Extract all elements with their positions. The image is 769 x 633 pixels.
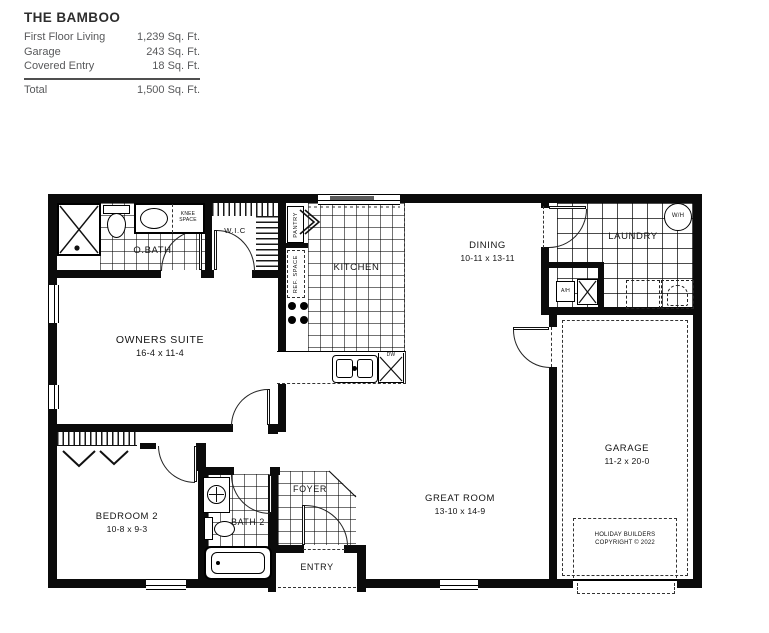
area-label: First Floor Living (24, 30, 105, 45)
bathtub (204, 546, 272, 580)
wall-segment (48, 270, 161, 278)
room-dims: 11-2 x 20-0 (568, 455, 686, 468)
owners-suite-window-lower (48, 385, 59, 409)
room-name: GREAT ROOM (395, 492, 525, 505)
wall-segment (598, 262, 604, 315)
washer (626, 280, 660, 309)
bedroom2-closet-hatch (57, 432, 137, 446)
room-dims: 13-10 x 14-9 (395, 505, 525, 518)
title-block-divider (24, 78, 200, 80)
wall-segment (48, 579, 146, 588)
wall-segment (364, 579, 440, 588)
room-label-bath2: BATH 2 (220, 516, 276, 529)
room-label-kitchen: KITCHEN (308, 261, 405, 274)
wall-segment (478, 579, 573, 588)
wall-segment (268, 545, 304, 553)
room-dims: 10-8 x 9-3 (67, 523, 187, 536)
pantry-box: PANTRY (287, 206, 304, 243)
room-label-wic: W.I.C (210, 224, 260, 237)
dishwasher: DW (378, 353, 404, 383)
wall-segment (140, 443, 156, 449)
copyright-text: HOLIDAY BUILDERS COPYRIGHT © 2022 (574, 532, 676, 547)
room-name: ENTRY (300, 562, 333, 572)
closet-bifold-doors-icon (63, 451, 128, 466)
room-label-garage: GARAGE 11-2 x 20-0 (568, 442, 686, 468)
garage-entry-door-opening (551, 327, 553, 367)
dryer-drum (667, 285, 688, 306)
room-name: KITCHEN (334, 262, 380, 273)
area-value: 18 Sq. Ft. (152, 59, 200, 74)
sink-basin (357, 359, 373, 378)
bath2-sink-basin (207, 485, 226, 504)
floorplan-page: THE BAMBOO First Floor Living 1,239 Sq. … (0, 0, 769, 633)
dishwasher-label: DW (379, 353, 403, 359)
room-dims: 16-4 x 11-4 (80, 347, 240, 360)
ref-space-label: REF. SPACE (293, 255, 299, 293)
wall-segment (549, 262, 604, 268)
wall-segment (268, 424, 278, 434)
room-name: OWNERS SUITE (80, 334, 240, 347)
room-label-bedroom2: BEDROOM 2 10-8 x 9-3 (67, 510, 187, 536)
wall-segment (693, 194, 702, 588)
total-row: Total 1,500 Sq. Ft. (24, 83, 200, 98)
bath2-toilet-tank (204, 517, 213, 540)
room-name: W.I.C (224, 226, 246, 235)
kitchen-sink (332, 355, 378, 383)
pantry-label: PANTRY (293, 212, 299, 238)
copyright-box: HOLIDAY BUILDERS COPYRIGHT © 2022 (573, 518, 677, 578)
wall-segment (48, 424, 233, 432)
room-label-owners-suite: OWNERS SUITE 16-4 x 11-4 (80, 334, 240, 360)
wall-segment (549, 315, 557, 327)
burner (288, 302, 296, 310)
kitchen-window-sill (330, 196, 374, 200)
great-room-window (440, 579, 478, 590)
room-name: O.BATH (133, 245, 171, 256)
room-label-laundry: LAUNDRY (577, 230, 689, 243)
burner (288, 316, 296, 324)
area-value: 243 Sq. Ft. (146, 45, 200, 60)
wall-segment (357, 545, 366, 592)
kitchen-dining-floor-break (404, 203, 406, 353)
wall-segment (48, 323, 57, 385)
knee-space-label: KNEE SPACE (173, 212, 203, 223)
air-handler-label: A/H (561, 289, 570, 295)
bedroom2-window (146, 579, 186, 590)
air-handler-box: A/H (556, 281, 575, 302)
wall-segment (201, 270, 214, 278)
room-name: BEDROOM 2 (67, 510, 187, 523)
wall-segment (270, 467, 280, 475)
room-name: BATH 2 (231, 517, 265, 527)
entry-threshold (303, 549, 345, 551)
wall-segment (400, 194, 702, 203)
garage-door-panel (577, 583, 675, 594)
sink-faucet (352, 366, 357, 371)
burner (300, 316, 308, 324)
room-name: DINING (430, 239, 545, 252)
bathtub-drain (216, 561, 220, 565)
sink-basin (336, 359, 353, 378)
room-dims: 10-11 x 13-11 (430, 252, 545, 265)
room-label-dining: DINING 10-11 x 13-11 (430, 239, 545, 265)
room-label-entry: ENTRY (282, 561, 352, 574)
wall-segment (549, 367, 557, 579)
wic-shelf-hatch-top (212, 203, 278, 216)
area-row: Covered Entry 18 Sq. Ft. (24, 59, 200, 74)
knee-space-line2: SPACE (173, 218, 203, 224)
room-name: FOYER (293, 484, 327, 494)
dryer (661, 280, 694, 309)
ref-space-box: REF. SPACE (287, 250, 305, 298)
room-label-obath: O.BATH (100, 244, 205, 257)
kitchen-floor (308, 203, 405, 353)
area-label: Covered Entry (24, 59, 94, 74)
copyright-line2: COPYRIGHT © 2022 (574, 540, 676, 548)
wall-segment (252, 270, 278, 278)
total-label: Total (24, 83, 47, 98)
room-label-great-room: GREAT ROOM 13-10 x 14-9 (395, 492, 525, 518)
burner (300, 302, 308, 310)
area-row: First Floor Living 1,239 Sq. Ft. (24, 30, 200, 45)
owners-suite-window-upper (48, 285, 59, 323)
entry-stoop-edge (278, 587, 356, 589)
garage-entry-door-swing (513, 330, 550, 368)
title-block: THE BAMBOO First Floor Living 1,239 Sq. … (24, 10, 200, 97)
vanity-sink (140, 208, 168, 229)
knee-space-box: KNEE SPACE (172, 204, 203, 233)
copyright-line1: HOLIDAY BUILDERS (574, 532, 676, 540)
area-value: 1,239 Sq. Ft. (137, 30, 200, 45)
water-heater-label: W/H (672, 214, 684, 220)
air-handler-unit (577, 279, 598, 305)
total-value: 1,500 Sq. Ft. (137, 83, 200, 98)
shower (57, 203, 101, 256)
area-label: Garage (24, 45, 61, 60)
area-row: Garage 243 Sq. Ft. (24, 45, 200, 60)
water-heater: W/H (664, 203, 692, 231)
wall-segment (278, 194, 286, 432)
wall-segment (286, 243, 308, 248)
room-label-foyer: FOYER (282, 483, 338, 496)
room-name: LAUNDRY (608, 231, 657, 242)
wall-segment (48, 409, 57, 588)
plan-title: THE BAMBOO (24, 10, 200, 25)
wall-segment (186, 579, 274, 588)
range-burners (286, 300, 312, 330)
bedroom2-door-swing (158, 446, 195, 483)
owners-suite-door-swing (231, 389, 268, 426)
room-name: GARAGE (568, 442, 686, 455)
